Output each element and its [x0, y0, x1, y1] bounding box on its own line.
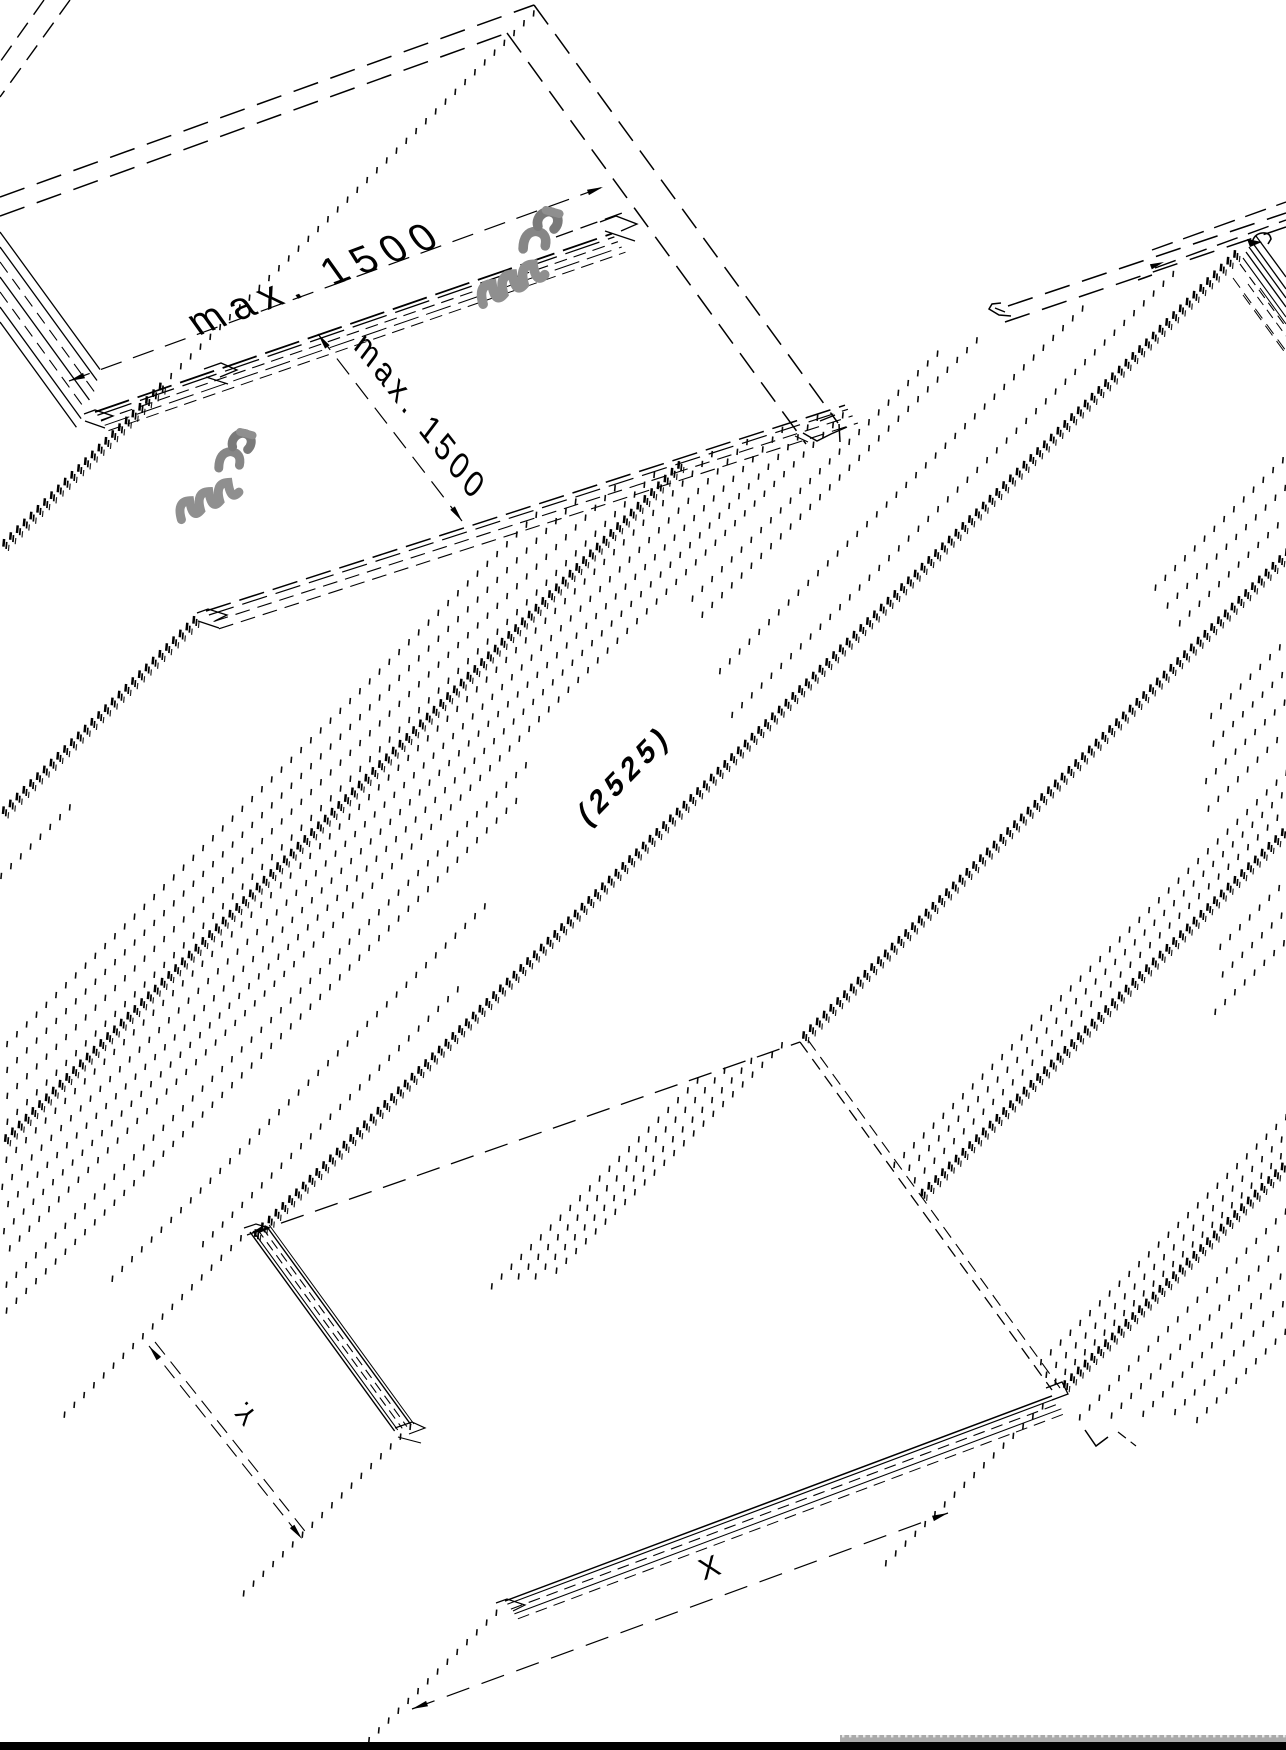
- svg-text:max. 1500: max. 1500: [178, 213, 455, 344]
- svg-text:(2525): (2525): [573, 716, 676, 833]
- svg-text:X: X: [694, 1549, 725, 1587]
- svg-text:max. 1500: max. 1500: [348, 323, 494, 510]
- svg-text:Y.: Y.: [227, 1396, 264, 1431]
